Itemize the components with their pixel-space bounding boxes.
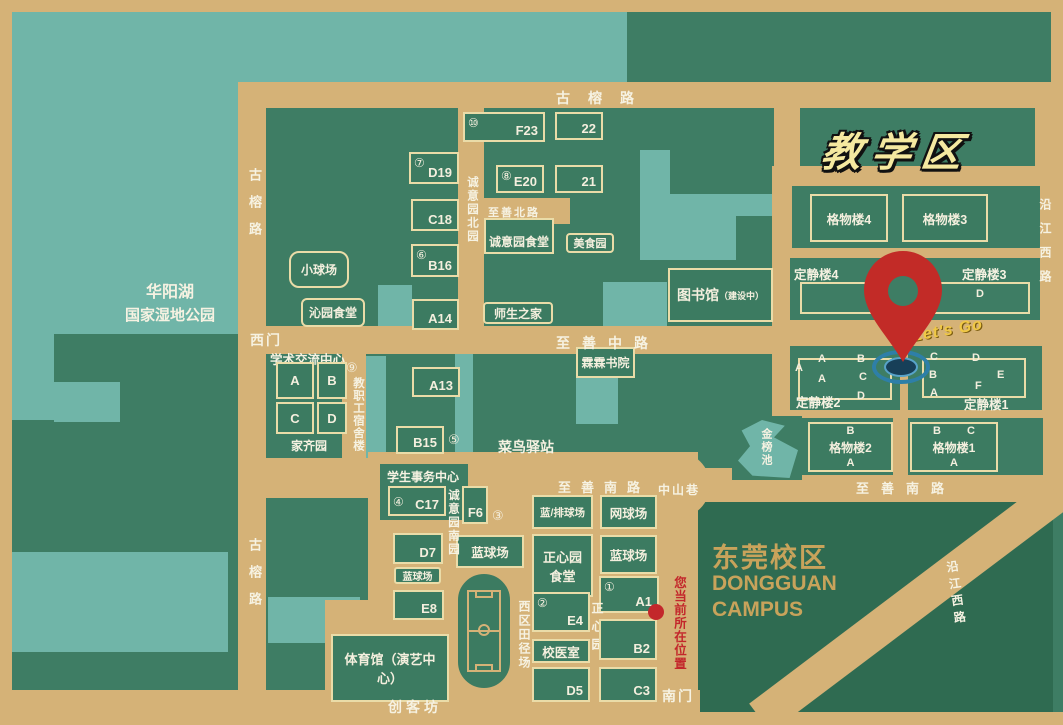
circled-number: ④ [393,495,404,509]
cainiao-station-label: 菜鸟驿站 [498,437,554,457]
academic-block-c: C [276,402,314,434]
circled-number: ⑧ [501,169,512,183]
faculty-dorm-label: 教职工宿舍楼 [350,377,366,452]
road-label-chengyiyuan-north: 诚意园北园 [464,176,480,244]
building-b2: B2 [599,619,657,660]
jiaqiyuan-label: 家齐园 [291,437,327,454]
academic-block-a: A [276,362,314,399]
circled-number: ③ [492,508,504,524]
building-21: 21 [555,165,603,193]
campus-name-en1: DONGGUAN [712,572,837,596]
building-zhengxinyuan-canteen: 正心园食堂 [532,534,593,597]
road-label-gurong-left-lower: 古榕路 [245,538,264,619]
building-library: 图书馆 （建设中） [668,268,773,322]
road-label-zhishan-south-east: 至善南路 [856,478,956,497]
jinbang-pond-label: 金榜池 [758,428,774,467]
road-label-gurong-left-upper: 古榕路 [245,168,264,249]
building-basketball-mid: 蓝球场 [456,535,524,568]
academic-block-d: D [317,402,347,434]
area-title: 教学区 [818,120,976,178]
student-affairs-label: 学生事务中心 [387,468,459,485]
building-c3: C3 [599,667,657,702]
campus-name-en2: CAMPUS [712,598,803,622]
building-b16: ⑥ B16 [411,244,459,277]
road-label-zhishan-north: 至善北路 [488,204,540,220]
building-gewulou1: B C 格物楼1 A [910,422,998,472]
building-b15: B15 [396,426,444,454]
road-label-chuangkefang: 创客坊 [388,697,442,717]
gewulou1-sub-bottom: A [950,457,958,469]
dingjinglou1-label: 定静楼1 [964,394,1008,413]
pitch-goal-box [475,590,493,598]
building-chengyiyuan-canteen: 诚意园食堂 [484,218,554,254]
road-label-yanjiang-west-upper: 沿江西路 [1037,198,1054,294]
road-label-zhishan-middle: 至善中路 [556,333,660,353]
west-gate-label: 西门 [250,330,282,350]
building-c18: C18 [411,199,459,231]
dingjinglou2-sub: A [818,373,826,385]
building-food-court: 美食园 [566,233,614,253]
building-e20: ⑧ E20 [496,165,544,193]
circled-number: ⑥ [416,248,427,262]
building-e4: ② E4 [532,592,590,632]
campus-name-cn: 东莞校区 [712,536,828,575]
lake-water [12,334,54,420]
canal-water [603,282,667,326]
circled-number: ⑦ [414,156,425,170]
canal-water [576,378,618,424]
dingjinglou1-sub: B [929,369,937,381]
building-qinyuan-canteen: 沁园食堂 [301,298,365,327]
current-location-dot [648,604,664,620]
dingjinglou2-sub: A [818,353,826,365]
road-label-zhongshan-lane: 中山巷 [658,481,700,498]
dingjinglou2-sub: C [859,371,867,383]
building-d7: D7 [393,533,443,564]
pitch-goal-box [475,664,493,672]
dingjinglou1-sub: D [972,352,980,364]
gewulou1-sub-top-left: B [933,425,941,437]
canal-water [366,356,386,466]
gewulou1-sub-top-right: C [967,425,975,437]
building-c17: ④ C17 [388,486,446,516]
building-f23: ⑩ F23 [463,112,545,142]
dingjinglou3-sub-d: D [976,288,984,300]
building-d5: D5 [532,667,590,702]
dingjinglou2-sub: D [857,390,865,402]
road-label-zhishan-south-west: 至善南路 [558,477,650,496]
dingjinglou1-sub: F [975,380,982,392]
building-gewulou4: 格物楼4 [810,194,888,242]
academic-block-b: B [317,362,347,399]
circled-number: ⑤ [448,432,460,448]
building-a13: A13 [412,367,460,397]
building-22: 22 [555,112,603,140]
building-gewulou2: B 格物楼2 A [808,422,893,472]
building-basketball-west: 蓝球场 [394,567,441,584]
west-track-field [454,570,514,692]
canal-water [640,216,736,260]
west-track-label: 西区田径场 [516,600,533,670]
building-f6: F6 [462,486,488,524]
dingjinglou1-sub: A [930,387,938,399]
gewulou2-sub-bottom: A [847,457,855,469]
dingjinglou2-sub: A [795,362,803,374]
current-location-label: 您当前所在位置 [670,576,689,671]
gewulou2-sub-top: B [847,425,855,437]
building-teacher-student-home: 师生之家 [483,302,553,324]
road-label-chengyiyuan-south: 诚意园南园 [445,489,461,557]
building-e8: E8 [393,590,444,620]
circled-number: ⑨ [346,360,358,376]
map-frame [0,0,12,725]
location-pin-icon [858,250,948,364]
building-a14: A14 [412,299,459,330]
building-basketball-east: 蓝球场 [600,535,657,574]
dingjinglou2-label: 定静楼2 [796,392,840,411]
pitch-center-circle [478,624,490,636]
road-label-gurong-top: 古榕路 [556,88,652,108]
building-gym: 体育馆（演艺中心） [331,634,449,702]
building-d19: ⑦ D19 [409,152,459,184]
circled-number: ⑩ [468,116,479,130]
map-frame [0,0,1063,12]
park-name: 华阳湖 国家湿地公园 [88,278,252,325]
south-gate-label: 南门 [662,686,694,706]
building-small-ball-court: 小球场 [289,251,349,288]
canal-water [670,194,778,216]
lake-water [12,552,228,652]
dingjinglou3-label: 定静楼3 [962,264,1006,283]
dingjinglou1-sub: E [997,369,1004,381]
campus-map: 金榜池 ⑩ F23 22 ⑧ E20 21 ⑦ D19 C18 ⑥ B16 A1… [0,0,1063,725]
building-gewulou3: 格物楼3 [902,194,988,242]
circled-number: ② [537,596,548,610]
building-volleyball: 蓝/排球场 [532,495,593,529]
lake-water [54,382,120,422]
circled-number: ① [604,580,615,594]
building-clinic: 校医室 [532,639,590,663]
dingjinglou4-label: 定静楼4 [794,264,838,283]
lake-water [12,10,627,82]
building-tennis: 网球场 [600,495,657,529]
